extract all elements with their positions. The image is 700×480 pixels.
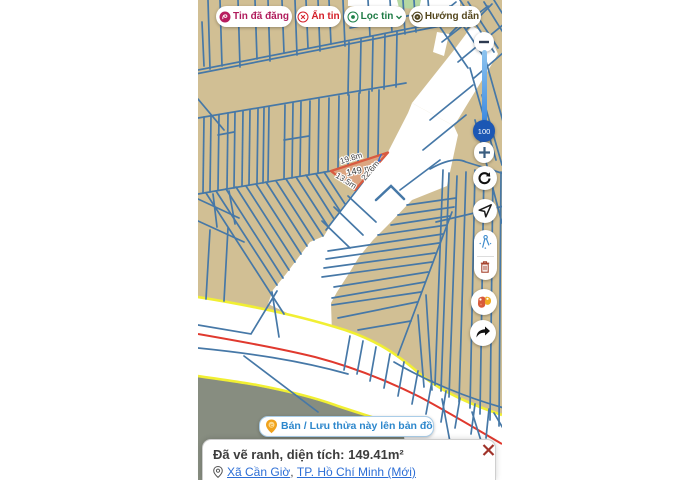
- svg-text:c: c: [270, 422, 273, 428]
